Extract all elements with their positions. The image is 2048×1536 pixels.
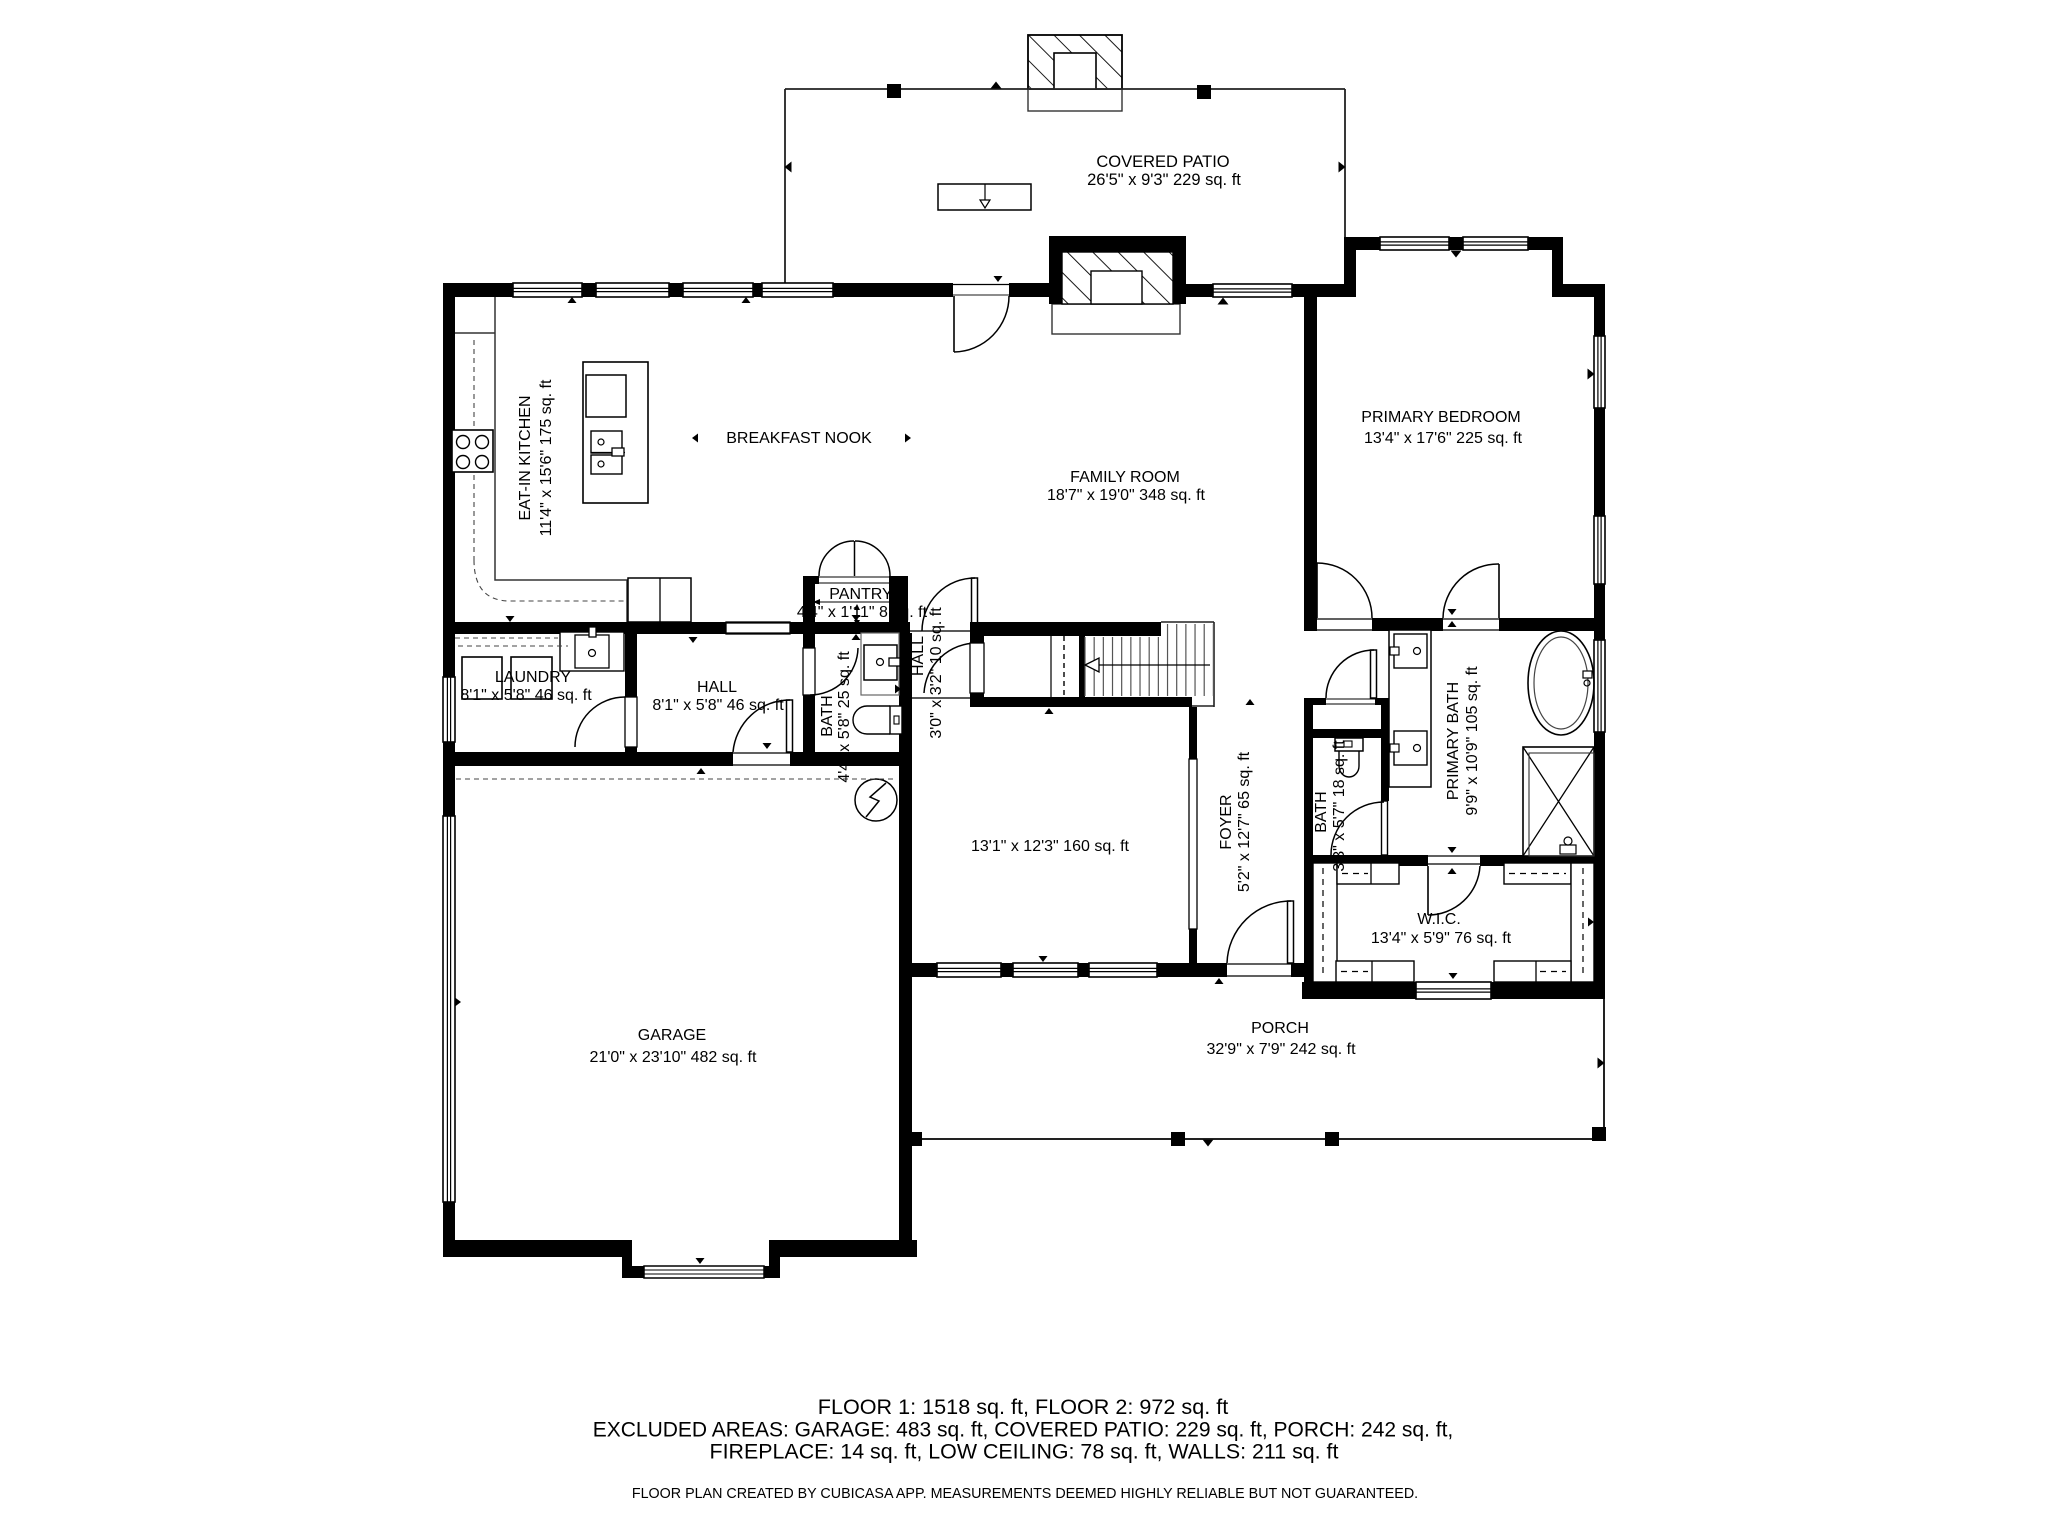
svg-text:13'4" x 5'9" 76 sq. ft: 13'4" x 5'9" 76 sq. ft — [1371, 930, 1512, 947]
svg-text:8'1" x 5'8" 46 sq. ft: 8'1" x 5'8" 46 sq. ft — [652, 697, 784, 714]
svg-text:13'1" x 12'3" 160 sq. ft: 13'1" x 12'3" 160 sq. ft — [971, 838, 1130, 855]
svg-text:5'2" x 12'7" 65 sq. ft: 5'2" x 12'7" 65 sq. ft — [1236, 751, 1253, 892]
svg-text:11'4" x 15'6" 175 sq. ft: 11'4" x 15'6" 175 sq. ft — [538, 379, 555, 536]
svg-text:21'0" x 23'10" 482 sq. ft: 21'0" x 23'10" 482 sq. ft — [590, 1049, 757, 1066]
svg-text:FIREPLACE: 14 sq. ft, LOW CEIL: FIREPLACE: 14 sq. ft, LOW CEILING: 78 sq… — [710, 1440, 1339, 1464]
svg-text:FOYER: FOYER — [1218, 794, 1235, 849]
svg-text:4'4" x 1'11" 8 sq. ft: 4'4" x 1'11" 8 sq. ft — [797, 604, 928, 621]
svg-text:9'9" x 10'9" 105 sq. ft: 9'9" x 10'9" 105 sq. ft — [1464, 666, 1481, 816]
svg-text:FAMILY ROOM: FAMILY ROOM — [1070, 469, 1180, 486]
svg-text:W.I.C.: W.I.C. — [1417, 911, 1461, 928]
svg-text:FLOOR PLAN CREATED BY CUBICASA: FLOOR PLAN CREATED BY CUBICASA APP. MEAS… — [632, 1486, 1418, 1502]
svg-text:BREAKFAST NOOK: BREAKFAST NOOK — [726, 430, 872, 447]
svg-text:26'5" x 9'3" 229 sq. ft: 26'5" x 9'3" 229 sq. ft — [1087, 171, 1241, 189]
svg-text:8'1" x 5'8" 46 sq. ft: 8'1" x 5'8" 46 sq. ft — [460, 687, 592, 704]
svg-text:PRIMARY BEDROOM: PRIMARY BEDROOM — [1361, 409, 1520, 426]
svg-text:FLOOR 1: 1518 sq. ft, FLOOR 2:: FLOOR 1: 1518 sq. ft, FLOOR 2: 972 sq. f… — [818, 1394, 1228, 1419]
svg-text:32'9" x 7'9" 242 sq. ft: 32'9" x 7'9" 242 sq. ft — [1206, 1041, 1356, 1058]
svg-text:4'4" x 5'8" 25 sq. ft: 4'4" x 5'8" 25 sq. ft — [836, 651, 853, 783]
svg-text:HALL: HALL — [697, 679, 737, 696]
svg-text:GARAGE: GARAGE — [638, 1027, 706, 1044]
svg-text:PRIMARY BATH: PRIMARY BATH — [1445, 682, 1462, 800]
svg-text:3'3" x 5'7" 18 sq. ft: 3'3" x 5'7" 18 sq. ft — [1331, 740, 1348, 872]
svg-text:HALL: HALL — [910, 636, 927, 676]
svg-text:BATH: BATH — [819, 695, 836, 736]
svg-text:PORCH: PORCH — [1251, 1020, 1309, 1037]
svg-text:BATH: BATH — [1313, 791, 1330, 832]
svg-text:13'4" x 17'6" 225 sq. ft: 13'4" x 17'6" 225 sq. ft — [1364, 430, 1523, 447]
svg-text:PANTRY: PANTRY — [829, 586, 893, 603]
svg-text:EXCLUDED AREAS: GARAGE: 483 sq: EXCLUDED AREAS: GARAGE: 483 sq. ft, COVE… — [593, 1419, 1454, 1442]
svg-text:COVERED PATIO: COVERED PATIO — [1096, 153, 1229, 171]
svg-text:18'7" x 19'0" 348 sq. ft: 18'7" x 19'0" 348 sq. ft — [1047, 487, 1206, 504]
svg-text:EAT-IN KITCHEN: EAT-IN KITCHEN — [517, 395, 534, 520]
svg-text:3'0" x 3'2" 10 sq. ft: 3'0" x 3'2" 10 sq. ft — [928, 607, 945, 739]
svg-text:LAUNDRY: LAUNDRY — [495, 669, 572, 686]
